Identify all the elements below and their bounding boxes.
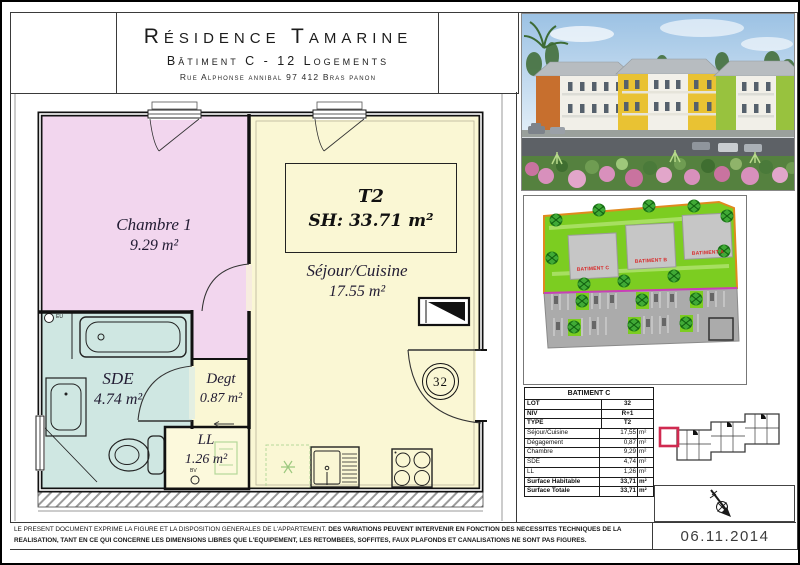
table-row: Chambre9,29m² bbox=[525, 448, 653, 458]
table-row: LL1,26m² bbox=[525, 468, 653, 478]
disclaimer-line-2: REALISATION, TANT EN CE QUI CONCERNE LES… bbox=[14, 536, 646, 547]
sde-label: SDE 4.74 m² bbox=[94, 368, 142, 411]
disclaimer-text: LE PRESENT DOCUMENT EXPRIME LA FIGURE ET… bbox=[14, 525, 646, 546]
table-row: Séjour/Cuisine17,55m² bbox=[525, 429, 653, 439]
date-box: 06.11.2014 bbox=[652, 523, 797, 549]
building-green bbox=[714, 61, 794, 136]
column-divider bbox=[516, 92, 517, 522]
document-date: 06.11.2014 bbox=[681, 528, 770, 545]
table-row: TYPET2 bbox=[525, 419, 653, 429]
table-row: Surface Habitable33,71m² bbox=[525, 478, 653, 488]
render-photo bbox=[521, 13, 795, 191]
north-arrow-icon bbox=[655, 486, 794, 521]
degt-label: Degt 0.87 m² bbox=[200, 370, 242, 408]
chambre-label: Chambre 1 9.29 m² bbox=[116, 214, 191, 257]
disclaimer-line-1: LE PRESENT DOCUMENT EXPRIME LA FIGURE ET… bbox=[14, 525, 646, 536]
footer-band: LE PRESENT DOCUMENT EXPRIME LA FIGURE ET… bbox=[10, 522, 796, 549]
eu-mark-label: EU bbox=[56, 314, 63, 320]
page-title: Résidence Tamarine bbox=[117, 25, 439, 49]
table-row: Surface Totale33,71m² bbox=[525, 487, 653, 496]
document-page: Résidence Tamarine Bâtiment C - 12 Logem… bbox=[0, 0, 800, 565]
bv-mark-label: BV bbox=[190, 468, 197, 474]
page-address: Rue Alphonse annibal 97 412 Bras panon bbox=[117, 72, 439, 82]
unit-surface: SH: 33.71 m² bbox=[308, 211, 433, 231]
table-row: LOT32 bbox=[525, 400, 653, 410]
unit-type: T2 bbox=[358, 186, 384, 207]
table-row: NIVR+1 bbox=[525, 410, 653, 420]
table-title: BATIMENT C bbox=[525, 388, 653, 400]
sejour-label: Séjour/Cuisine 17.55 m² bbox=[306, 260, 407, 303]
header-left-box bbox=[10, 12, 118, 94]
unit-highlight-marker bbox=[660, 428, 678, 446]
site-plan: BATIMENT C BATIMENT B BATIMENT A bbox=[523, 195, 747, 385]
ll-label: LL 1.26 m² bbox=[185, 431, 227, 469]
page-subtitle: Bâtiment C - 12 Logements bbox=[117, 54, 439, 68]
header-right-box bbox=[438, 12, 519, 94]
table-row: Dégagement0,87m² bbox=[525, 439, 653, 449]
lot-number-marker: 32 bbox=[422, 363, 459, 400]
key-plan bbox=[657, 402, 792, 470]
unit-summary-box: T2 SH: 33.71 m² bbox=[285, 163, 457, 253]
title-block: Résidence Tamarine Bâtiment C - 12 Logem… bbox=[116, 12, 440, 94]
north-box bbox=[654, 485, 795, 522]
table-row: SDE4,74m² bbox=[525, 458, 653, 468]
building-yellow bbox=[616, 59, 722, 134]
unit-data-table: BATIMENT C LOT32 NIVR+1 TYPET2 Séjour/Cu… bbox=[524, 387, 654, 497]
